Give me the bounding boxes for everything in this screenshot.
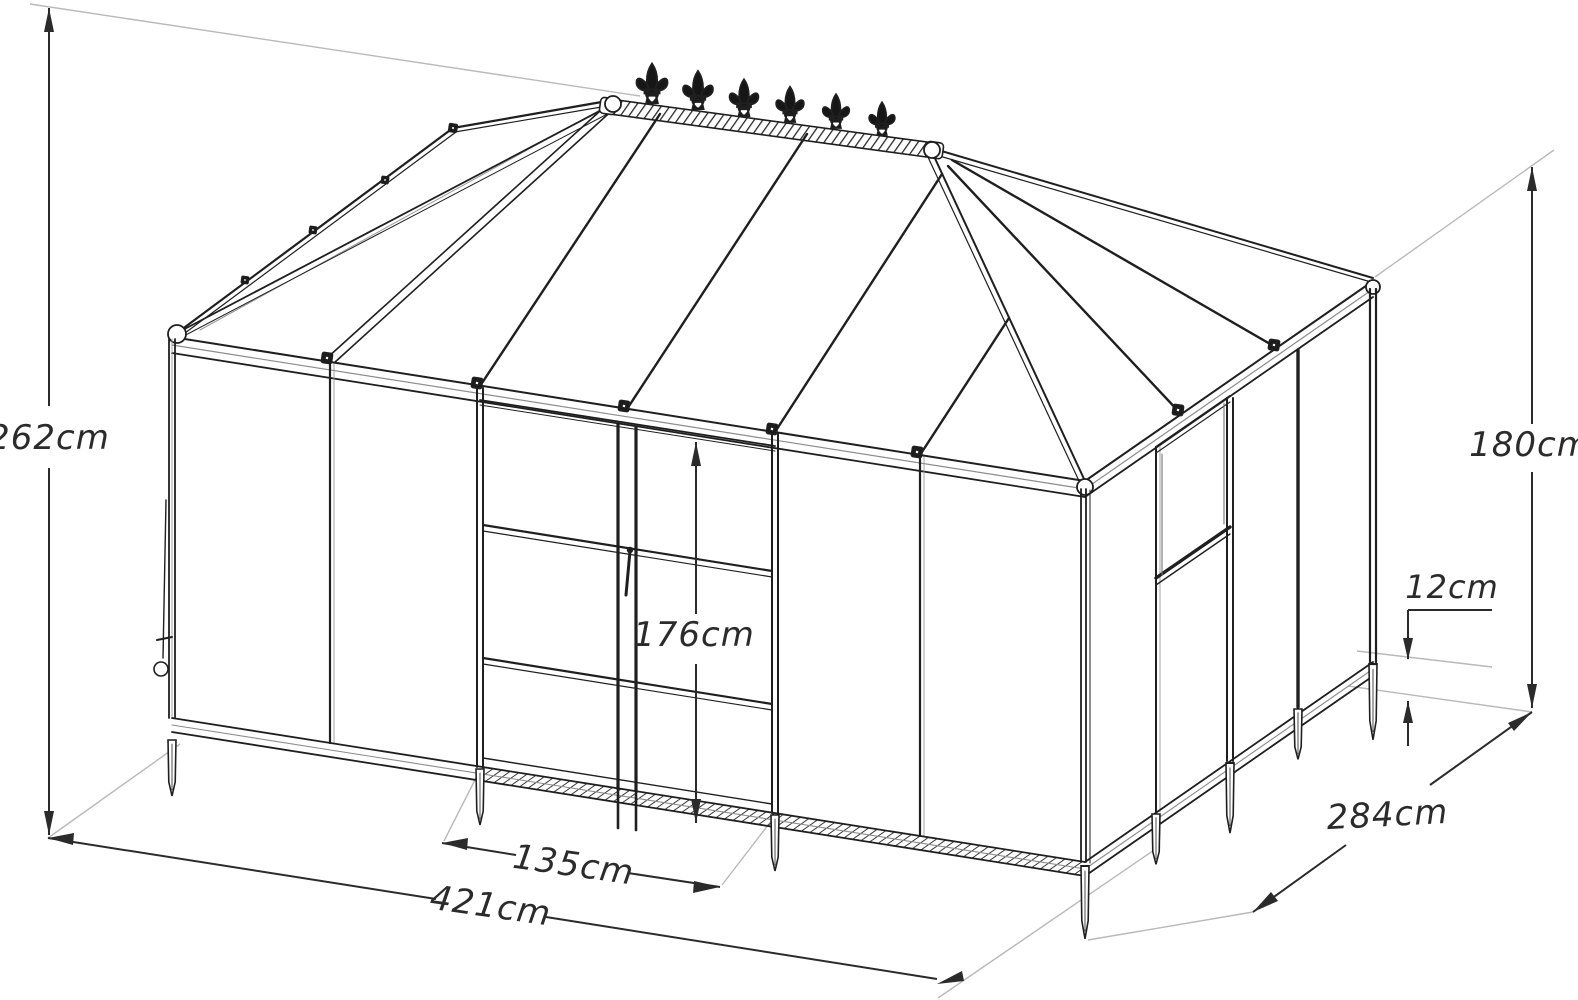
extension-lines xyxy=(30,4,1554,998)
greenhouse-structure xyxy=(154,64,1380,939)
drawing-canvas: 262cm 180cm 12cm 176cm 135cm 421cm 284cm xyxy=(0,0,1578,1000)
label-door-width: 135cm xyxy=(510,837,636,894)
roof-glazing-bar xyxy=(948,166,1181,414)
front-double-doors xyxy=(477,388,778,813)
eave-bracket xyxy=(321,352,332,363)
window-sill xyxy=(1156,527,1230,578)
ridge-cresting xyxy=(599,64,944,160)
label-door-height: 176cm xyxy=(633,615,755,655)
label-side-depth: 284cm xyxy=(1326,792,1450,838)
eave-clip xyxy=(309,226,317,234)
roof-right-hip xyxy=(927,150,1373,483)
ridge-joint xyxy=(924,142,940,158)
eave-bracket xyxy=(911,446,922,457)
fleur-de-lis-finial xyxy=(869,102,895,135)
corner-joint xyxy=(168,325,186,343)
eave-clip xyxy=(448,123,457,132)
corner-joint xyxy=(1366,280,1380,294)
fleur-de-lis-finial xyxy=(730,79,759,116)
label-plinth: 12cm xyxy=(1405,568,1498,606)
right-wall xyxy=(1156,289,1376,812)
roof-left-hip xyxy=(177,100,615,338)
dimension-labels: 262cm 180cm 12cm 176cm 135cm 421cm 284cm xyxy=(0,418,1578,934)
roof-glazing-bar xyxy=(952,160,1277,348)
fleur-de-lis-finial xyxy=(637,64,668,103)
fleur-de-lis-finial xyxy=(683,71,713,109)
fleur-de-lis-finial xyxy=(776,87,804,122)
eave-bracket xyxy=(1268,339,1279,350)
eave-bracket xyxy=(618,400,629,411)
eave-bracket xyxy=(1172,404,1183,415)
label-total-height: 262cm xyxy=(0,418,110,458)
corner-joint xyxy=(1077,479,1093,495)
eave-bracket xyxy=(471,377,482,388)
eave-clip xyxy=(241,276,249,284)
label-eave-height: 180cm xyxy=(1469,425,1578,465)
dimension-lines xyxy=(44,8,1537,984)
eave-bracket xyxy=(766,423,777,434)
eave-clip xyxy=(381,176,389,184)
eave-beams xyxy=(168,96,1380,497)
label-front-width: 421cm xyxy=(427,878,553,935)
front-wall xyxy=(154,339,1090,863)
door-mid-rail xyxy=(483,658,772,704)
ridge-joint xyxy=(605,96,621,112)
fleur-de-lis-finial xyxy=(823,94,849,128)
greenhouse-dimension-drawing: 262cm 180cm 12cm 176cm 135cm 421cm 284cm xyxy=(0,0,1578,1000)
dimension-plinth xyxy=(1403,610,1492,746)
